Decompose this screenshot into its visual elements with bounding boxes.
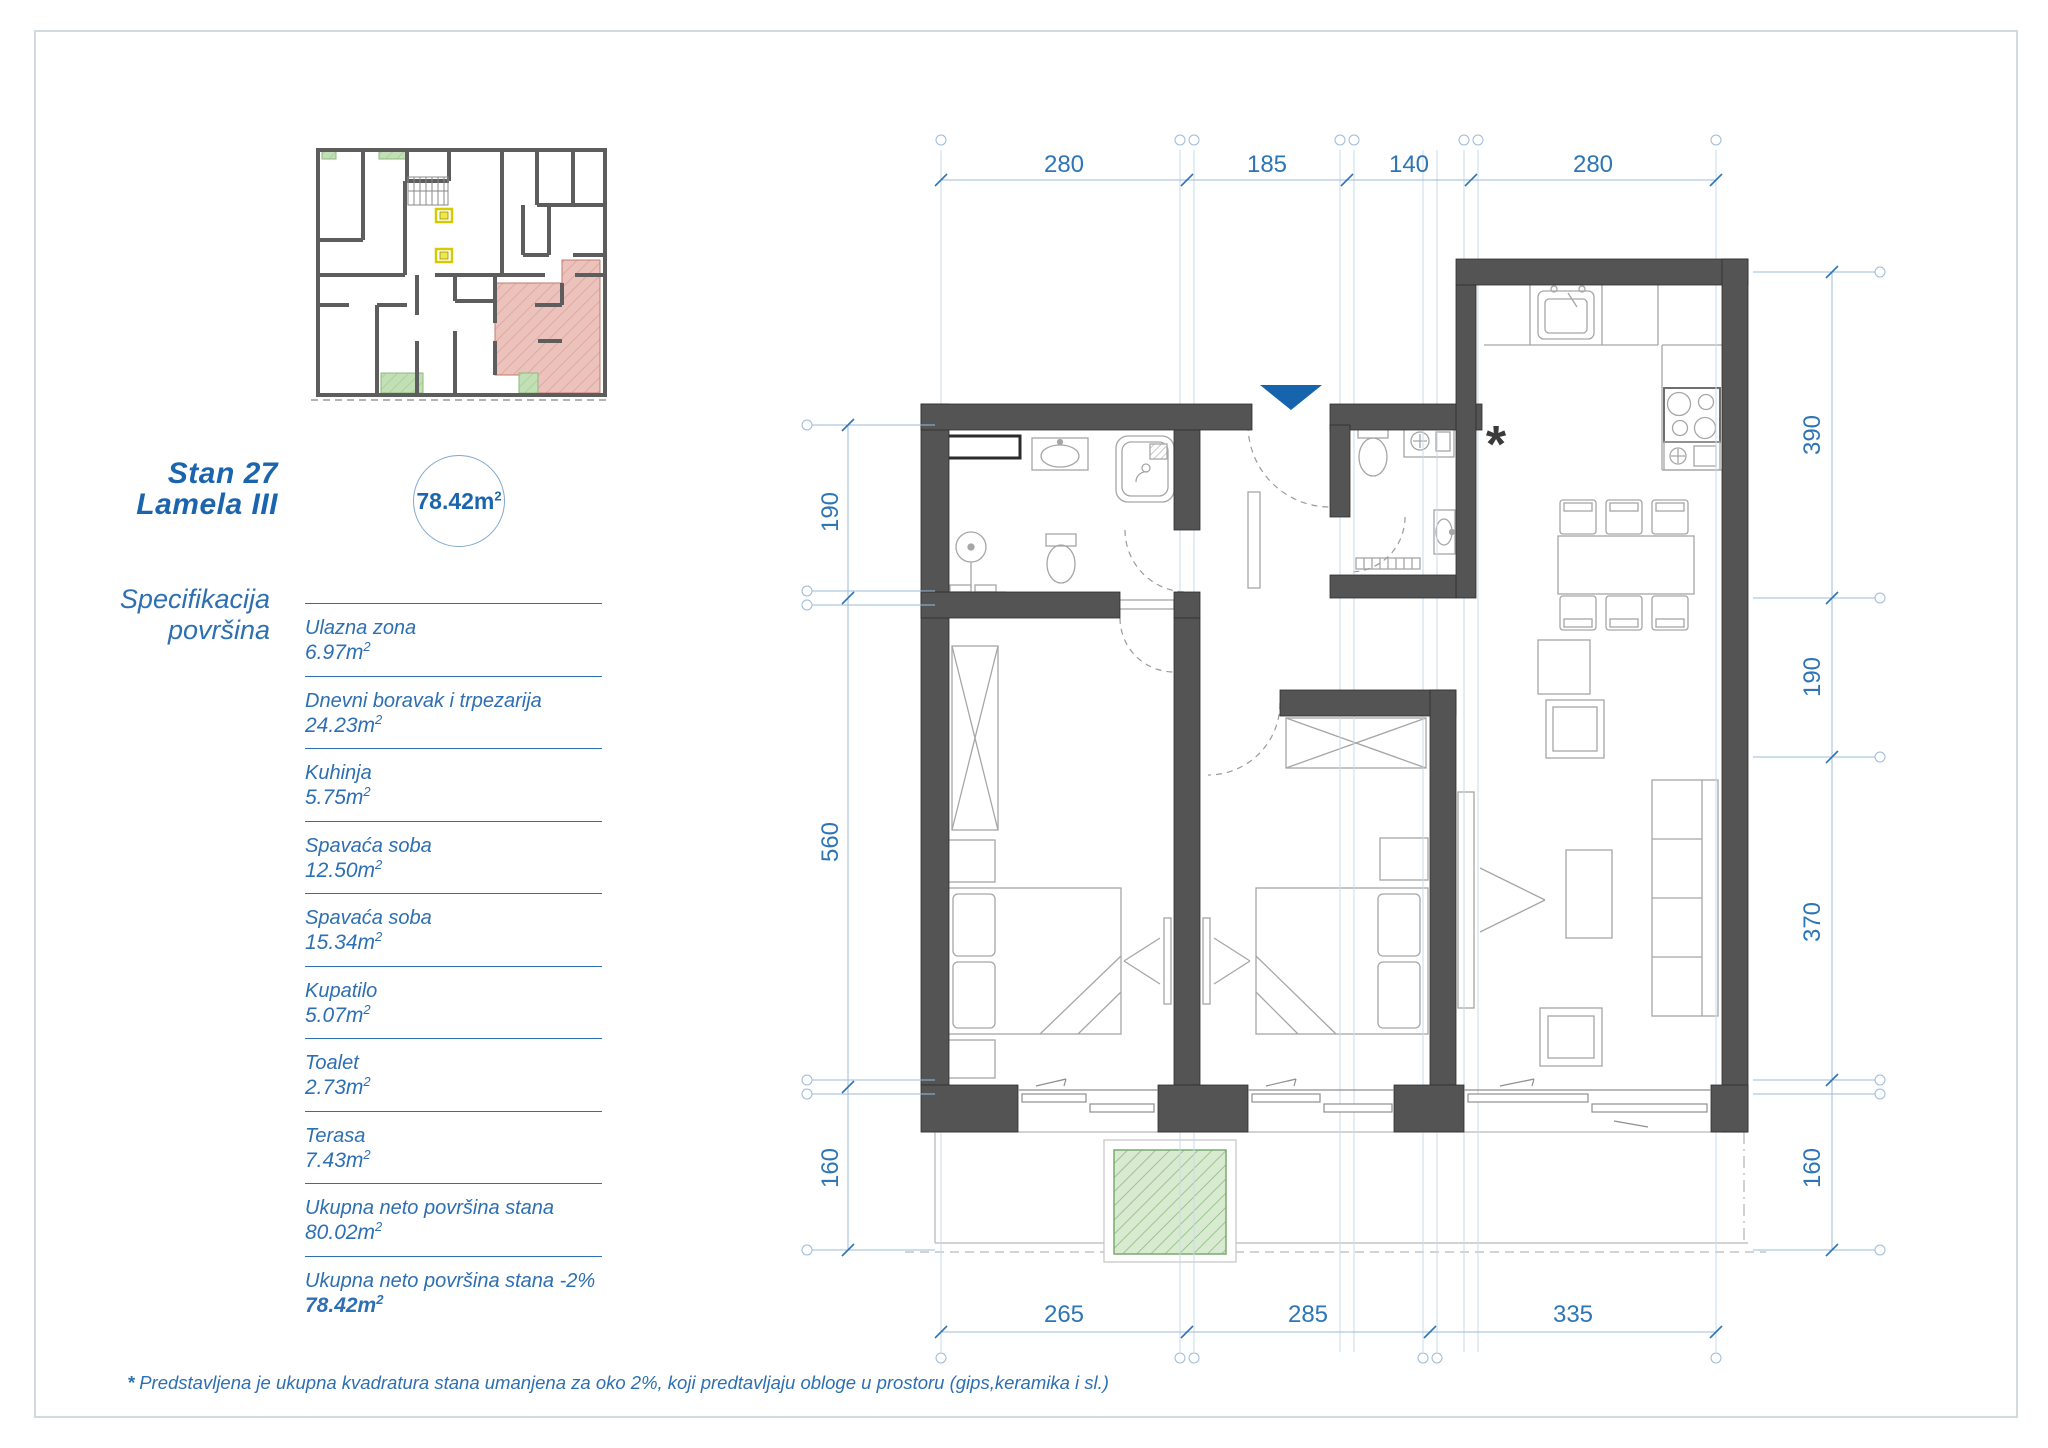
bedroom2-right-wall [1430,690,1456,1085]
bedroom1-door-swing [1120,618,1174,672]
pillar-bedroom2 [1394,1085,1464,1132]
bathroom-bottom-wall [921,592,1120,618]
pillar-left-corner [921,1085,1018,1132]
bedroom2-bed [1256,888,1428,1034]
spec-item-total: Ukupna neto površina stana -2% 78.42m2 [305,1256,602,1329]
dim-top-4: 280 [1573,151,1613,178]
apartment-title: Stan 27 Lamela III [60,458,278,520]
bathroom-toilet [1046,534,1076,583]
kitchen-stove [1664,388,1720,442]
spec-heading: Specifikacija površina [60,584,270,646]
bedroom-divider-wall [1174,618,1200,1085]
spec-item: Kupatilo 5.07m2 [305,966,602,1039]
wall-layer [921,259,1748,1132]
bathroom-right-wall [1174,430,1200,530]
wc-toilet [1358,427,1388,476]
terrace-planter [1104,1140,1236,1262]
sofa [1652,780,1718,1016]
dimension-labels: 280 185 140 280 190 560 160 390 190 370 … [817,151,1826,1328]
left-wall [921,404,949,1085]
spec-item: Ukupna neto površina stana 80.02m2 [305,1183,602,1256]
wc-left-wall [1330,425,1350,517]
dim-left-1: 190 [817,492,844,532]
wc-radiator [1356,558,1420,569]
living-terrace-door [1464,1079,1711,1127]
badge-value: 78.42m [416,488,494,514]
spec-item: Terasa 7.43m2 [305,1111,602,1184]
dim-right-3: 370 [1799,902,1826,942]
bedroom1-nightstand-b [947,1040,995,1078]
pillar-right-corner [1711,1085,1748,1132]
structural-grid [941,150,1716,1352]
spec-item: Dnevni boravak i trpezarija 24.23m2 [305,676,602,749]
bedroom2-top-wall [1280,690,1456,716]
dim-top-2: 185 [1247,151,1287,178]
living-armchair-set [1538,640,1604,758]
right-wall [1722,259,1748,1132]
area-specification-list: Ulazna zona 6.97m2 Dnevni boravak i trpe… [305,603,602,1328]
dining-table-set [1558,500,1694,630]
spec-item: Kuhinja 5.75m2 [305,748,602,821]
window-layer [1018,1079,1711,1127]
wc-door-swing [1350,517,1405,572]
kitchen-top-wall [1456,259,1748,285]
living-armchair-2 [1540,1008,1602,1066]
bedroom1-bed [947,888,1121,1034]
total-area-badge: 78.42m2 [413,455,505,547]
dim-top-3: 140 [1389,151,1429,178]
plan-asterisk: * [1486,416,1507,474]
bedroom1-window [1018,1079,1158,1112]
bedroom2-window [1248,1079,1394,1112]
grid-bubbles-right [1875,267,1885,1255]
bathroom-top-wall [921,404,1252,430]
building-name: Lamela III [60,489,278,520]
bedroom1-wardrobe [952,646,998,830]
footnote-asterisk: * [128,1372,135,1393]
badge-sup: 2 [494,488,501,503]
apartment-floor-plan: * [660,90,1920,1390]
tv-console [1458,792,1545,1008]
dim-bottom-1: 265 [1044,1301,1084,1328]
spec-item: Toalet 2.73m2 [305,1038,602,1111]
bathroom-door-swing [1125,530,1187,592]
wc-washing-machine [1404,427,1454,457]
floorplan-brochure-page: { "title": { "line1": "Stan 27", "line2"… [0,0,2048,1448]
bathroom-shelf [942,436,1020,458]
dim-left-3: 160 [817,1148,844,1188]
highlighted-apartment-shape [495,260,600,393]
bedroom2-nightstand [1380,838,1428,880]
dim-right-1: 390 [1799,415,1826,455]
dim-top-1: 280 [1044,151,1084,178]
bedroom1-nightstand-a [947,840,995,882]
dim-right-4: 160 [1799,1148,1826,1188]
dim-right-2: 190 [1799,657,1826,697]
terrace [905,1132,1766,1252]
bedroom2-door-swing [1208,703,1280,775]
dim-left-2: 560 [817,822,844,862]
spec-item: Spavaća soba 15.34m2 [305,893,602,966]
shower-column [946,532,1006,592]
coffee-table [1566,850,1612,938]
bathroom-sink [1032,438,1088,470]
kitchen-base-cabinet [1664,442,1720,470]
entry-shelf [1248,492,1260,588]
building-overview-plan [297,145,613,403]
entrance-arrow-icon [1260,385,1322,410]
dim-bottom-2: 285 [1288,1301,1328,1328]
dim-bottom-3: 335 [1553,1301,1593,1328]
elevator-icons [436,209,452,262]
pillar-divider [1158,1085,1248,1132]
spec-item: Ulazna zona 6.97m2 [305,603,602,676]
bathroom-corner-stub [1174,592,1200,618]
bedroom2-wardrobe [1286,718,1426,768]
spec-item: Spavaća soba 12.50m2 [305,821,602,894]
bathtub [1116,436,1174,502]
wc-bottom-wall [1330,575,1456,598]
apartment-number: Stan 27 [60,458,278,489]
grid-bubbles-top [936,135,1721,145]
kitchen-left-wall [1456,285,1476,598]
grid-bubbles-bottom [936,1353,1721,1363]
grid-bubbles-left [802,420,812,1255]
bedroom1-threshold [1118,600,1174,609]
